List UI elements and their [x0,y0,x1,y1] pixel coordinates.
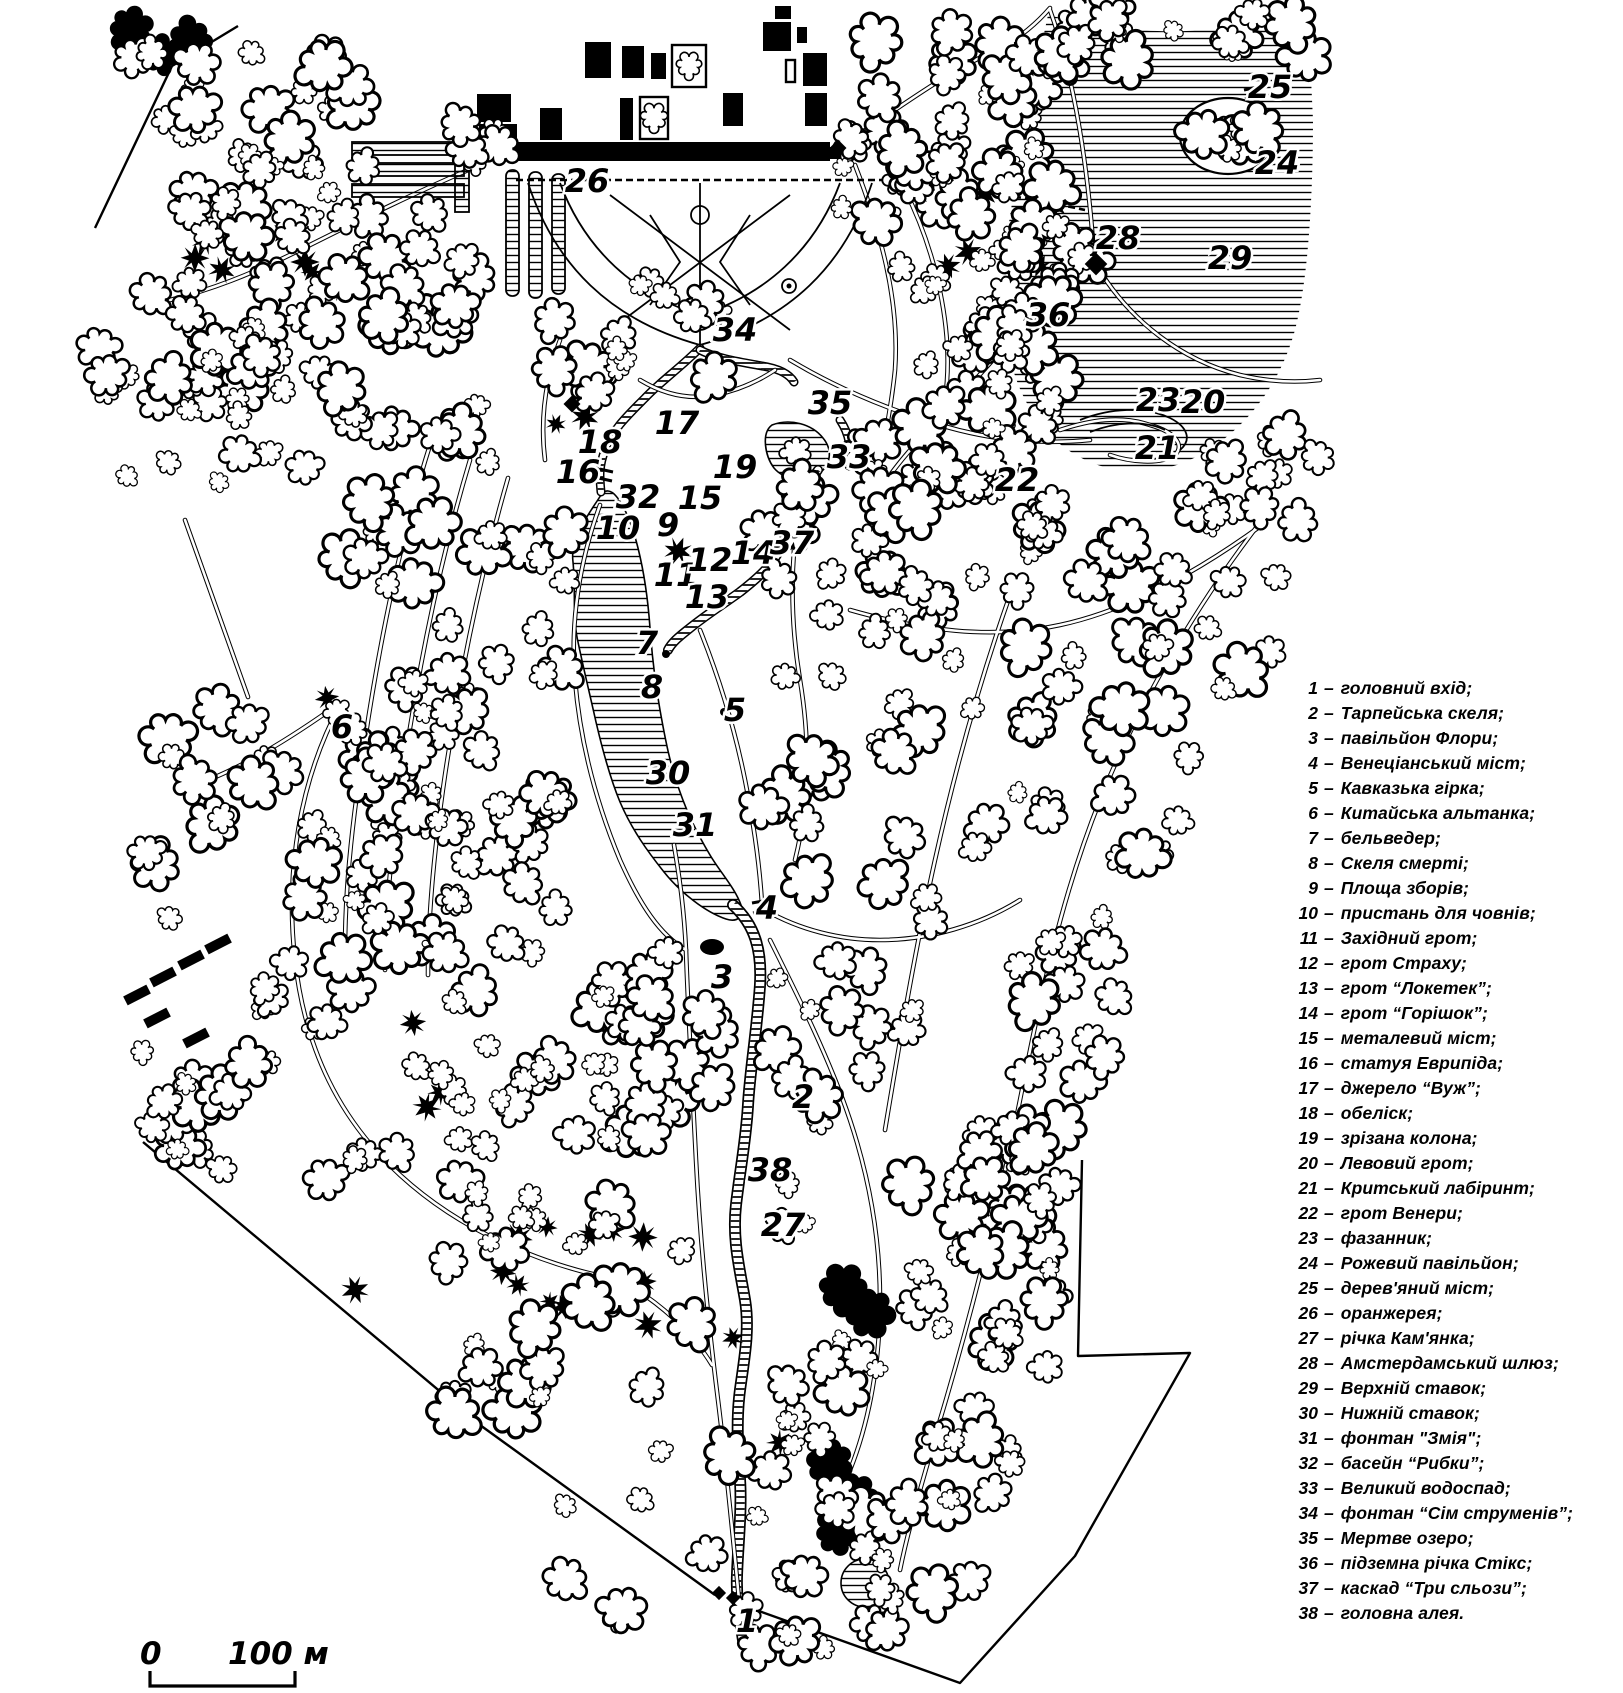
legend-item-label: головний вхід; [1341,678,1473,699]
tree-symbol [624,1361,671,1410]
tree-symbol [745,1504,772,1529]
legend-dash: – [1324,1353,1334,1374]
map-label-38: 38 [748,1151,793,1189]
legend-dash: – [1324,828,1334,849]
star-landmark-icon [542,410,569,437]
legend-dash: – [1324,1203,1334,1224]
tree-symbol [1082,768,1140,825]
legend-item-number: 22 [1282,1203,1318,1224]
tree-symbol [646,1436,676,1465]
legend-dash: – [1324,1153,1334,1174]
legend-item-number: 19 [1282,1128,1318,1149]
legend-item: 30–Нижній ставок; [1282,1403,1622,1428]
map-label-12: 12 [688,541,733,579]
legend-item-number: 1 [1282,678,1318,699]
tree-symbol [215,430,267,479]
legend-item-label: зрізана колона; [1341,1128,1478,1149]
legend-dash: – [1324,1103,1334,1124]
map-label-19: 19 [713,448,758,486]
legend-item: 19–зрізана колона; [1282,1128,1622,1153]
tree-symbol [590,1581,650,1637]
main-wall [515,142,830,161]
legend-dash: – [1324,928,1334,949]
legend-item-label: павільйон Флори; [1341,728,1499,749]
tree-symbol [1205,560,1249,603]
legend-dash: – [1324,753,1334,774]
legend-item: 12–грот Страху; [1282,953,1622,978]
tree-symbol [663,1230,702,1269]
legend-item-label: головна алея. [1341,1603,1464,1624]
legend-item: 38–головна алея. [1282,1603,1622,1628]
legend-dash: – [1324,1428,1334,1449]
tree-symbol [466,1127,506,1168]
legend-item-number: 28 [1282,1353,1318,1374]
scale-bar: 0 100 м [140,1636,329,1686]
legend-item: 17–джерело “Вуж”; [1282,1078,1622,1103]
tree-symbol [681,1531,731,1579]
legend-item-number: 20 [1282,1153,1318,1174]
map-label-8: 8 [641,668,663,706]
legend-item-number: 21 [1282,1178,1318,1199]
tree-symbol [443,1126,473,1154]
map-label-3: 3 [711,958,733,996]
legend-item: 32–басейн “Рибки”; [1282,1453,1622,1478]
map-label-5: 5 [724,691,746,729]
legend-item-number: 7 [1282,828,1318,849]
tree-symbol [874,806,933,865]
map-label-6: 6 [331,708,353,746]
legend-item-label: грот Страху; [1341,953,1467,974]
legend-item-number: 34 [1282,1503,1318,1524]
map-label-2: 2 [792,1078,814,1116]
legend-item: 1–головний вхід; [1282,678,1622,703]
map-label-33: 33 [827,438,872,476]
tree-symbol [910,346,944,381]
legend-dash: – [1324,978,1334,999]
tree-symbol [204,467,232,496]
map-label-22: 22 [995,461,1040,499]
map-label-24: 24 [1255,144,1300,182]
scale-100m: 100 м [228,1636,329,1672]
legend-item-number: 37 [1282,1578,1318,1599]
legend-dash: – [1324,953,1334,974]
tree-symbol [1257,559,1294,594]
legend-item-label: підземна річка Стікс; [1341,1553,1533,1574]
legend-item-label: Кавказька гірка; [1341,778,1485,799]
legend-item-label: Рожевий павільйон; [1341,1253,1519,1274]
legend-item-label: Західний грот; [1341,928,1478,949]
map-label-30: 30 [646,754,691,792]
legend-item-label: фонтан "Змія"; [1341,1428,1482,1449]
legend-dash: – [1324,1253,1334,1274]
legend-dash: – [1324,1453,1334,1474]
entrance-wall-and-buildings [477,6,844,161]
tree-symbol [879,1155,939,1219]
tree-symbol [772,841,847,916]
tree-symbol [929,95,977,144]
tree-symbol [623,1483,659,1518]
legend-item-label: Тарпейська скеля; [1341,703,1504,724]
legend-item-label: грот Венери; [1341,1203,1463,1224]
map-label-28: 28 [1096,219,1141,257]
map-label-26: 26 [565,162,610,200]
tree-symbol [848,1051,886,1092]
legend-item-number: 16 [1282,1053,1318,1074]
legend-dash: – [1324,1603,1334,1624]
legend-item-label: Великий водоспад; [1341,1478,1511,1499]
map-label-7: 7 [636,624,659,662]
legend-item-label: статуя Еврипіда; [1341,1053,1503,1074]
legend-item: 2–Тарпейська скеля; [1282,703,1622,728]
legend-item: 10–пристань для човнів; [1282,903,1622,928]
map-label-23: 23 [1136,381,1181,419]
tree-symbol [811,655,850,694]
legend-item: 24–Рожевий павільйон; [1282,1253,1622,1278]
legend-item-label: Левовий грот; [1341,1153,1474,1174]
tree-symbol [482,790,514,819]
legend-item: 16–статуя Еврипіда; [1282,1053,1622,1078]
legend-item-number: 29 [1282,1378,1318,1399]
legend-item: 21–Критський лабіринт; [1282,1178,1622,1203]
legend-item-label: джерело “Вуж”; [1341,1078,1481,1099]
map-label-21: 21 [1135,429,1180,467]
tree-symbol [809,600,843,631]
tree-symbol [1060,640,1087,669]
legend-dash: – [1324,703,1334,724]
legend-item-number: 12 [1282,953,1318,974]
map-label-25: 25 [1248,68,1293,106]
legend-dash: – [1324,1078,1334,1099]
tree-symbol [151,900,186,934]
map-label-37: 37 [770,524,815,562]
legend-item: 22–грот Венери; [1282,1203,1622,1228]
tree-symbol [1112,824,1177,885]
legend-item-number: 33 [1282,1478,1318,1499]
legend-dash: – [1324,1178,1334,1199]
tree-symbol [149,444,184,479]
legend-item-label: Амстердамський шлюз; [1341,1353,1559,1374]
tree-symbol [809,554,851,597]
legend-item-label: фонтан “Сім струменів”; [1341,1503,1573,1524]
tree-symbol [283,445,329,488]
legend-dash: – [1324,1553,1334,1574]
legend-dash: – [1324,1328,1334,1349]
legend-item-label: фазанник; [1341,1228,1432,1249]
legend-dash: – [1324,1303,1334,1324]
legend-item-label: грот “Горішок”; [1341,1003,1488,1024]
legend-item: 3–павільйон Флори; [1282,728,1622,753]
flora-pavilion-3-marker [700,939,724,955]
legend-item: 28–Амстердамський шлюз; [1282,1353,1622,1378]
tree-symbol [536,1549,599,1612]
tree-symbol [840,186,909,254]
map-label-4: 4 [755,889,778,927]
legend-item-label: оранжерея; [1341,1303,1443,1324]
legend-dash: – [1324,1278,1334,1299]
tree-symbol [1277,497,1318,542]
legend-dash: – [1324,853,1334,874]
tree-symbol [1076,923,1133,978]
legend-item-number: 35 [1282,1528,1318,1549]
legend-dash: – [1324,878,1334,899]
legend-item-number: 26 [1282,1303,1318,1324]
tree-symbol [130,1040,154,1066]
legend-dash: – [1324,1003,1334,1024]
tree-symbol [235,36,271,71]
legend-item-label: Венеціанський міст; [1341,753,1526,774]
legend-item-label: металевий міст; [1341,1028,1497,1049]
legend-item: 7–бельведер; [1282,828,1622,853]
legend-dash: – [1324,1528,1334,1549]
legend-item-number: 32 [1282,1453,1318,1474]
legend-dash: – [1324,678,1334,699]
scale-bar-line [150,1671,295,1686]
legend-item: 31–фонтан "Змія"; [1282,1428,1622,1453]
tree-symbol [269,373,299,405]
tree-symbol [1173,742,1204,775]
legend-item-label: грот “Локетек”; [1341,978,1492,999]
legend-dash: – [1324,1578,1334,1599]
tree-symbol [1090,903,1115,930]
legend-item: 33–Великий водоспад; [1282,1478,1622,1503]
legend-item: 9–Площа зборів; [1282,878,1622,903]
legend-item: 34–фонтан “Сім струменів”; [1282,1503,1622,1528]
tree-symbol [552,1114,596,1154]
map-label-13: 13 [685,578,730,616]
tree-symbol [431,606,466,643]
legend-item: 36–підземна річка Стікс; [1282,1553,1622,1578]
legend-item: 8–Скеля смерті; [1282,853,1622,878]
legend-item-number: 10 [1282,903,1318,924]
legend-dash: – [1324,1128,1334,1149]
legend-dash: – [1324,778,1334,799]
legend-dash: – [1324,1053,1334,1074]
tree-symbol [1089,972,1142,1025]
legend-item: 15–металевий міст; [1282,1028,1622,1053]
tree-symbol [519,608,557,649]
legend-dash: – [1324,1228,1334,1249]
legend-item-number: 15 [1282,1028,1318,1049]
legend-item-label: Мертве озеро; [1341,1528,1474,1549]
scanned-park-map-page: { "legend": { "dash": "–", "items": [ {"… [0,0,1623,1693]
tree-symbol [1027,1351,1062,1383]
map-label-32: 32 [616,478,661,516]
tree-symbol [961,561,992,594]
legend-item: 13–грот “Локетек”; [1282,978,1622,1003]
tree-symbol [477,643,518,687]
legend-item-number: 24 [1282,1253,1318,1274]
map-label-1: 1 [736,1602,758,1640]
legend-item-number: 11 [1282,928,1318,949]
star-landmark-icon [336,1271,374,1309]
legend-item-number: 27 [1282,1328,1318,1349]
legend-dash: – [1324,1028,1334,1049]
tree-symbol [843,10,907,78]
legend-item-number: 31 [1282,1428,1318,1449]
legend-item-number: 8 [1282,853,1318,874]
map-label-29: 29 [1208,239,1253,277]
legend-dash: – [1324,1378,1334,1399]
map-label-27: 27 [761,1206,806,1244]
tree-symbol [426,1240,469,1286]
legend-item-number: 5 [1282,778,1318,799]
legend-item-number: 3 [1282,728,1318,749]
map-label-18: 18 [578,423,623,461]
legend-item: 23–фазанник; [1282,1228,1622,1253]
legend-item-number: 30 [1282,1403,1318,1424]
legend-dash: – [1324,903,1334,924]
legend-item-number: 9 [1282,878,1318,899]
tree-symbol [1160,803,1198,839]
tree-symbol [1239,487,1280,531]
legend-item-number: 38 [1282,1603,1318,1624]
legend-item: 5–Кавказька гірка; [1282,778,1622,803]
tree-symbol [1021,1278,1068,1329]
tree-symbol [757,1354,816,1413]
legend-dash: – [1324,728,1334,749]
legend-item-label: пристань для човнів; [1341,903,1536,924]
legend-item: 20–Левовий грот; [1282,1153,1622,1178]
tree-symbol [112,461,143,492]
map-label-17: 17 [655,404,700,442]
tree-symbol [471,1031,502,1060]
map-label-35: 35 [808,384,853,422]
tree-symbol [1019,791,1072,842]
legend-item-number: 18 [1282,1103,1318,1124]
ruin-marks [123,934,232,1049]
legend-item-number: 17 [1282,1078,1318,1099]
legend-item: 4–Венеціанський міст; [1282,753,1622,778]
legend-item: 37–каскад “Три сльози”; [1282,1578,1622,1603]
legend-item-number: 25 [1282,1278,1318,1299]
legend-item: 29–Верхній ставок; [1282,1378,1622,1403]
legend-item-label: обеліск; [1341,1103,1413,1124]
tree-symbol [939,644,968,675]
legend-item-label: бельведер; [1341,828,1441,849]
legend-item-label: Верхній ставок; [1341,1378,1486,1399]
legend-item-number: 2 [1282,703,1318,724]
legend-item: 26–оранжерея; [1282,1303,1622,1328]
legend-item-number: 23 [1282,1228,1318,1249]
legend-item: 27–річка Кам'янка; [1282,1328,1622,1353]
legend-item-label: басейн “Рибки”; [1341,1453,1485,1474]
legend-item-label: річка Кам'янка; [1341,1328,1475,1349]
legend-item-label: Площа зборів; [1341,878,1469,899]
legend-item: 25–дерев'яний міст; [1282,1278,1622,1303]
tree-symbol [539,889,572,925]
legend-dash: – [1324,1503,1334,1524]
legend-item-label: Скеля смерті; [1341,853,1469,874]
scale-zero: 0 [140,1636,162,1672]
tree-symbol [1043,669,1082,705]
legend-item: 14–грот “Горішок”; [1282,1003,1622,1028]
map-label-36: 36 [1026,296,1071,334]
tree-symbol [1007,780,1029,804]
legend-item: 11–Західний грот; [1282,928,1622,953]
legend-item-number: 4 [1282,753,1318,774]
legend-item-label: Китайська альтанка; [1341,803,1535,824]
legend-item-label: Критський лабіринт; [1341,1178,1535,1199]
legend: 1–головний вхід;2–Тарпейська скеля;3–пав… [1282,678,1622,1628]
tree-symbol [1005,1055,1047,1093]
legend-dash: – [1324,1403,1334,1424]
map-label-20: 20 [1181,383,1226,421]
map-label-14: 14 [731,534,776,572]
legend-item-label: каскад “Три сльози”; [1341,1578,1527,1599]
legend-item-label: Нижній ставок; [1341,1403,1480,1424]
legend-item-number: 14 [1282,1003,1318,1024]
legend-item: 35–Мертве озеро; [1282,1528,1622,1553]
legend-item-label: дерев'яний міст; [1341,1278,1494,1299]
legend-dash: – [1324,1478,1334,1499]
map-label-31: 31 [673,806,718,844]
legend-item: 6–Китайська альтанка; [1282,803,1622,828]
legend-item: 18–обеліск; [1282,1103,1622,1128]
legend-item-number: 36 [1282,1553,1318,1574]
legend-item-number: 13 [1282,978,1318,999]
legend-dash: – [1324,803,1334,824]
map-label-34: 34 [713,311,758,349]
tree-symbol [661,1292,726,1360]
tree-symbol [867,1359,889,1379]
legend-item-number: 6 [1282,803,1318,824]
star-landmark-icon [398,1008,428,1038]
